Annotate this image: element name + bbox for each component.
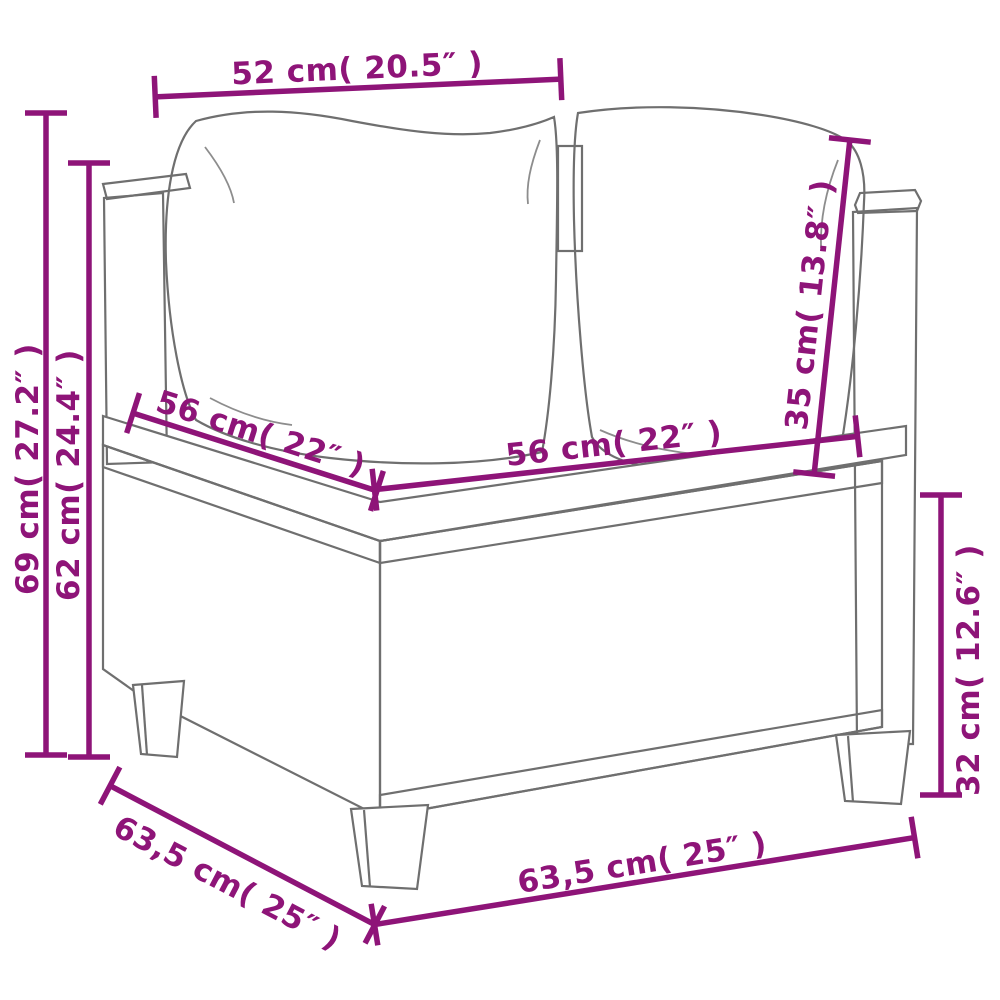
base-bottom-rail-right (380, 710, 882, 817)
tick-start (100, 767, 120, 804)
leg-front-center (351, 805, 428, 889)
tick-start (154, 76, 156, 118)
leg-front-left (133, 681, 184, 757)
dimension-label: 63,5 cm( 25″ ) (515, 825, 769, 901)
cushion-crease (528, 140, 541, 204)
tick-start (371, 904, 378, 945)
tick-end (560, 58, 562, 100)
dim-base-height: 32 cm( 12.6″ ) (920, 495, 987, 796)
dimension-label: 62 cm( 24.4″ ) (51, 349, 87, 601)
tick-end (911, 817, 918, 858)
leg-rear-right (836, 731, 910, 804)
dim-backrest-height: 62 cm( 24.4″ ) (51, 163, 110, 757)
right-armrest-weave (853, 208, 917, 744)
dimension-label: 63,5 cm( 25″ ) (107, 809, 347, 958)
cushion-crease (205, 147, 234, 203)
dim-top-back-width: 52 cm( 20.5″ ) (154, 42, 562, 118)
tick-start (793, 472, 835, 476)
dimension-label: 69 cm( 27.2″ ) (10, 343, 46, 595)
sofa-dimension-drawing: 52 cm( 20.5″ ) 69 cm( 27.2″ ) 62 cm( 24.… (0, 0, 1000, 1000)
dimension-diagram: 52 cm( 20.5″ ) 69 cm( 27.2″ ) 62 cm( 24.… (0, 0, 1000, 1000)
sofa-sketch (103, 107, 921, 889)
tick-end (829, 138, 871, 142)
dimension-label: 32 cm( 12.6″ ) (951, 544, 987, 796)
corner-post-weave (558, 146, 582, 251)
dim-overall-width: 63,5 cm( 25″ ) (369, 802, 918, 945)
